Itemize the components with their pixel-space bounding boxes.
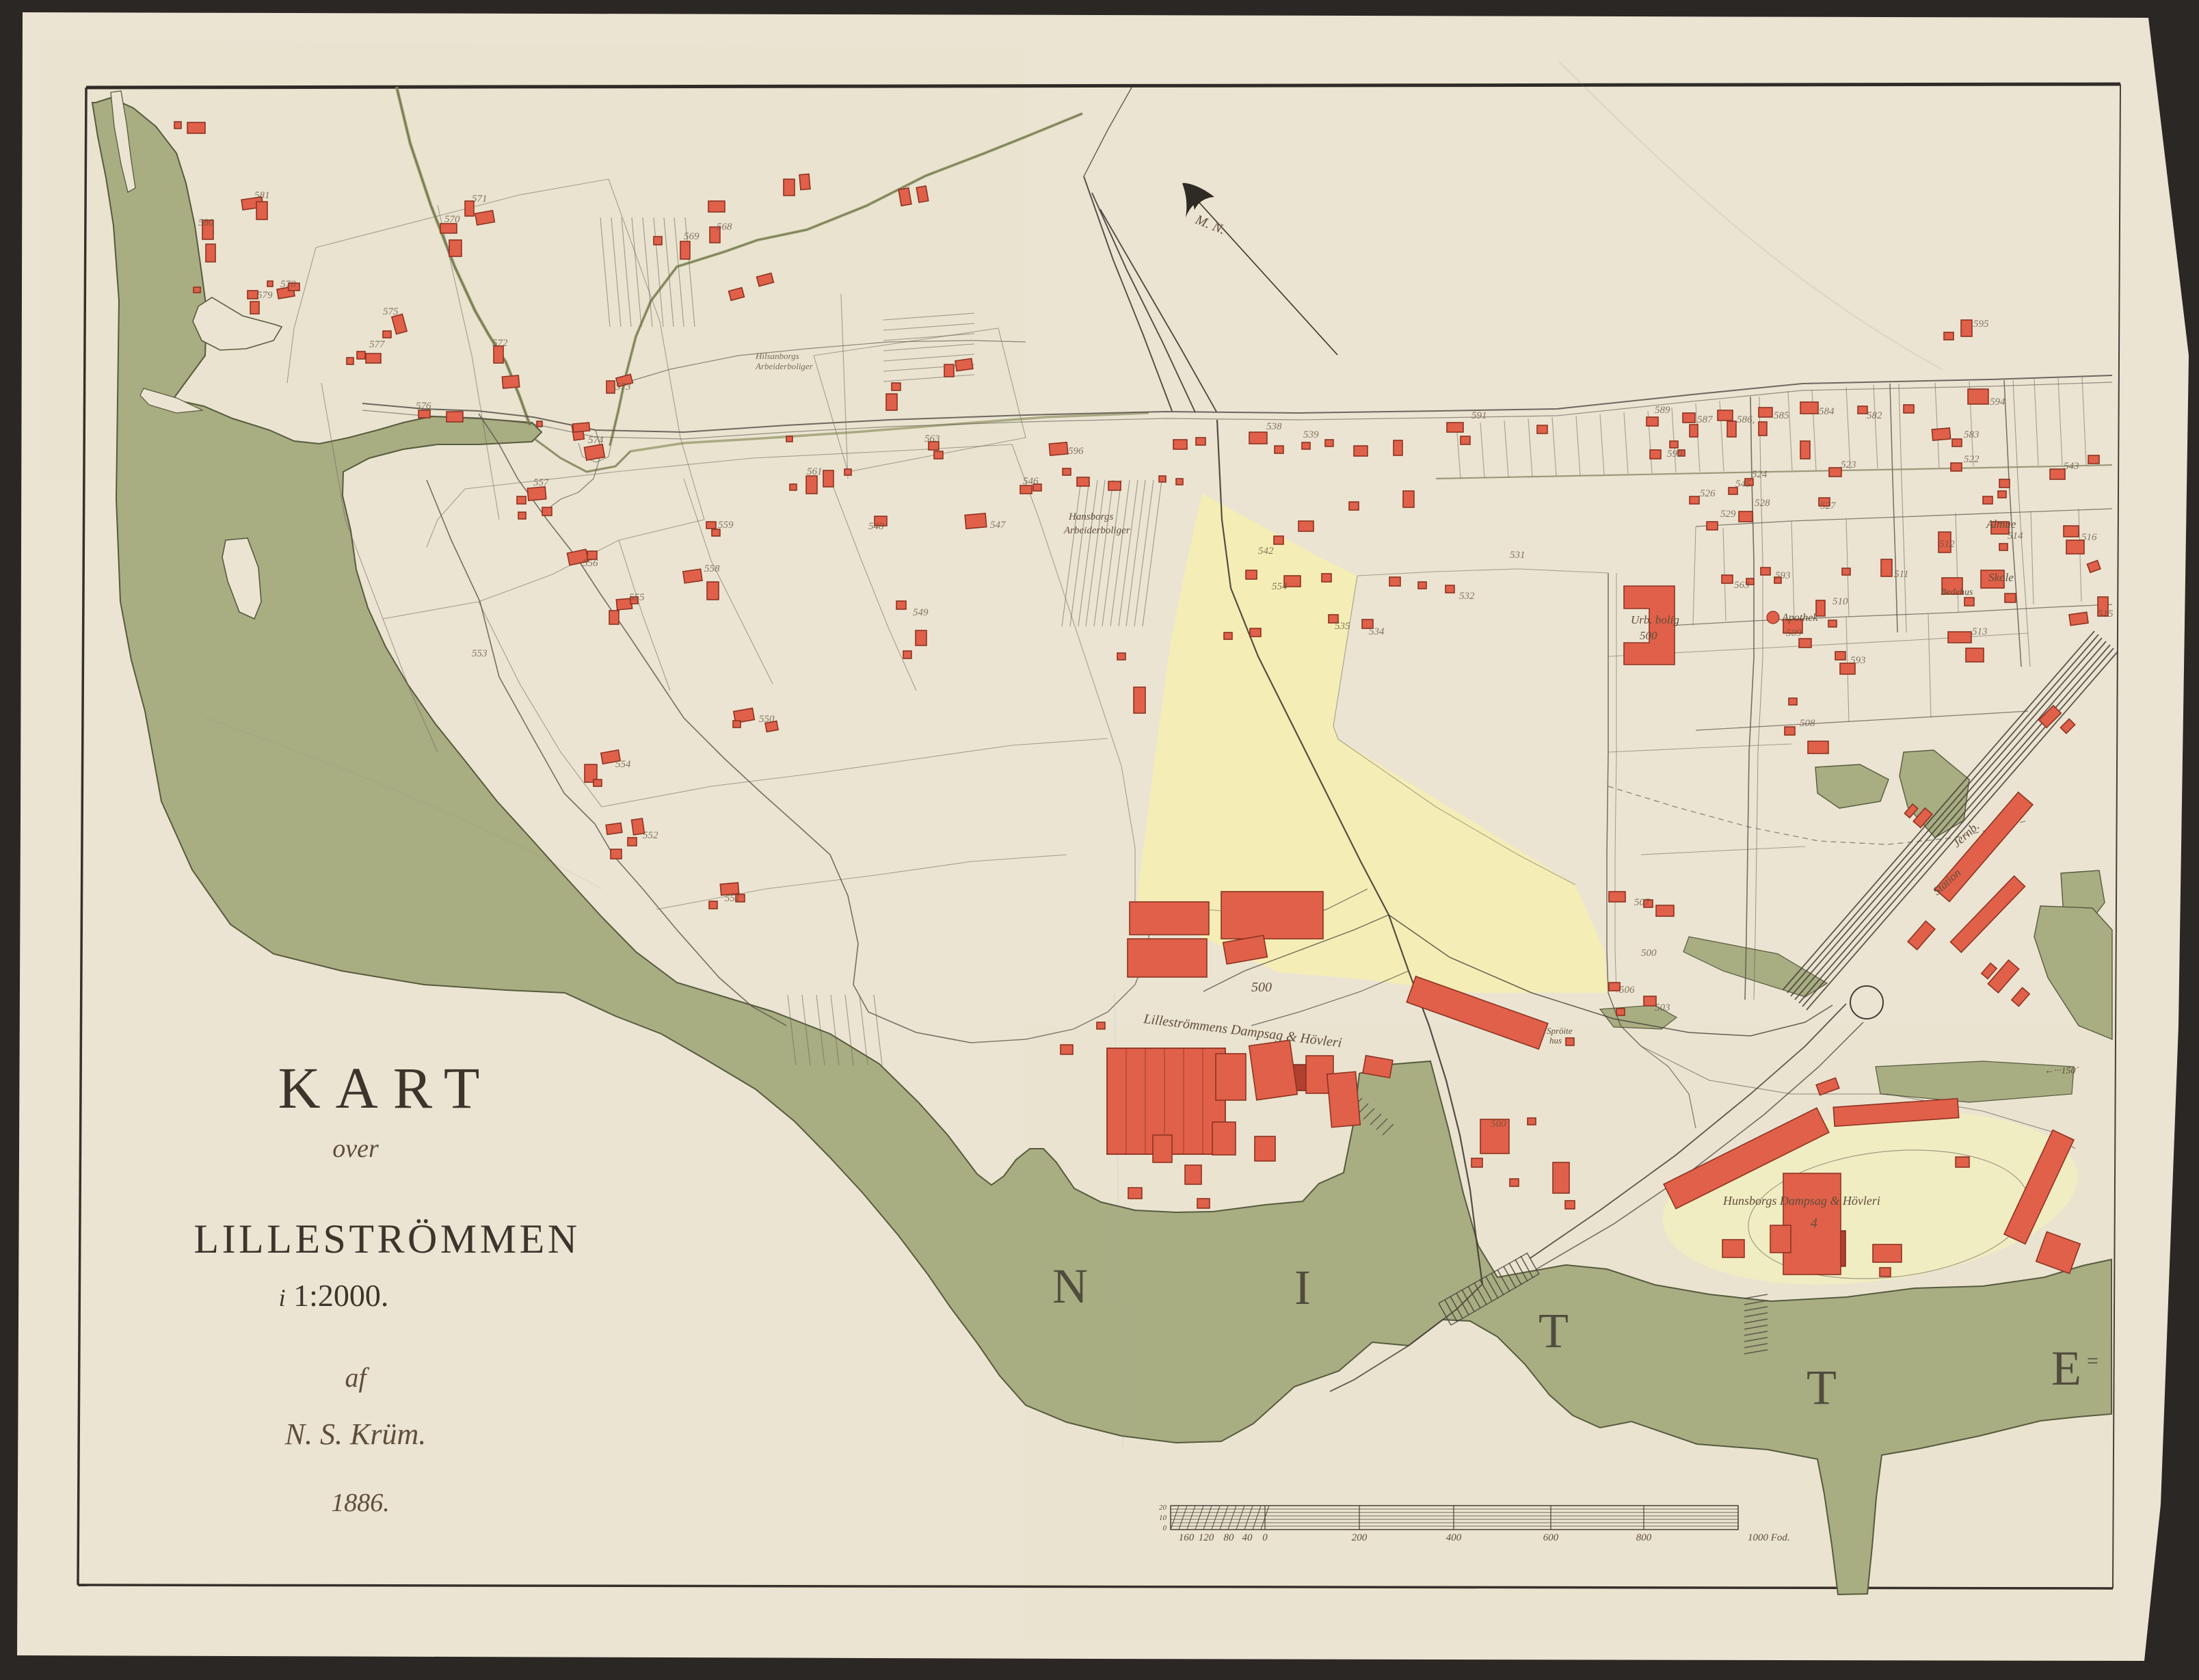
- svg-text:584: 584: [1819, 406, 1835, 417]
- svg-text:KART: KART: [278, 1055, 495, 1121]
- svg-text:528: 528: [1755, 498, 1770, 509]
- svg-text:1886.: 1886.: [331, 1489, 390, 1517]
- svg-text:554: 554: [1272, 581, 1288, 592]
- svg-text:500: 500: [1640, 629, 1657, 642]
- svg-text:548: 548: [868, 521, 884, 532]
- svg-text:535: 535: [1335, 621, 1350, 632]
- svg-text:580: 580: [198, 217, 214, 228]
- svg-text:583: 583: [1964, 429, 1980, 440]
- svg-text:Hunsborgs Dampsag & Hövleri: Hunsborgs Dampsag & Hövleri: [1722, 1194, 1880, 1208]
- svg-text:590: 590: [1667, 449, 1683, 459]
- svg-text:500: 500: [1491, 1119, 1506, 1130]
- svg-text:569: 569: [684, 231, 699, 242]
- svg-text:20: 20: [1159, 1504, 1167, 1512]
- svg-text:557: 557: [533, 477, 550, 488]
- svg-text:510: 510: [1833, 596, 1848, 607]
- svg-text:516: 516: [2081, 532, 2097, 543]
- svg-text:509: 509: [1786, 628, 1802, 639]
- svg-text:559: 559: [718, 520, 734, 531]
- svg-text:503: 503: [1655, 1002, 1670, 1013]
- svg-text:526: 526: [1700, 488, 1716, 499]
- svg-text:T: T: [1538, 1303, 1569, 1358]
- svg-text:538: 538: [1266, 421, 1282, 432]
- svg-text:500: 500: [1251, 980, 1272, 995]
- svg-text:594: 594: [1990, 397, 2005, 408]
- svg-text:LILLESTRÖMMEN: LILLESTRÖMMEN: [194, 1216, 580, 1262]
- svg-text:N. S. Krüm.: N. S. Krüm.: [284, 1417, 427, 1451]
- svg-text:550: 550: [759, 714, 775, 725]
- svg-text:549: 549: [913, 607, 929, 618]
- svg-text:511: 511: [1894, 569, 1908, 580]
- svg-text:400: 400: [1446, 1532, 1462, 1543]
- svg-text:506: 506: [1619, 985, 1635, 996]
- svg-text:Hansborgs: Hansborgs: [1068, 511, 1113, 522]
- svg-text:515: 515: [2098, 609, 2114, 619]
- svg-text:545: 545: [1735, 479, 1751, 490]
- svg-text:500: 500: [1641, 948, 1657, 959]
- svg-text:593: 593: [1775, 570, 1791, 581]
- svg-text:531: 531: [1510, 550, 1525, 561]
- svg-text:596: 596: [1068, 446, 1084, 457]
- svg-text:568: 568: [717, 222, 732, 232]
- svg-text:581: 581: [254, 190, 270, 201]
- svg-text:558: 558: [704, 563, 720, 574]
- svg-text:80: 80: [1224, 1532, 1235, 1543]
- svg-text:507: 507: [1634, 897, 1651, 908]
- svg-text:561: 561: [807, 466, 823, 477]
- svg-text:532: 532: [1459, 591, 1475, 602]
- svg-text:587: 587: [1697, 414, 1714, 425]
- svg-text:524: 524: [1752, 469, 1768, 480]
- svg-text:0: 0: [1163, 1524, 1167, 1532]
- svg-text:=: =: [2087, 1350, 2098, 1372]
- svg-text:547: 547: [990, 520, 1007, 531]
- svg-text:546: 546: [1023, 476, 1039, 487]
- svg-text:40: 40: [1242, 1532, 1253, 1543]
- svg-text:542: 542: [1258, 546, 1274, 557]
- svg-text:534: 534: [1369, 626, 1385, 637]
- svg-text:E: E: [2051, 1341, 2081, 1396]
- svg-text:Almue: Almue: [1986, 518, 2016, 531]
- svg-text:586,: 586,: [1737, 414, 1755, 425]
- svg-text:1000 Fod.: 1000 Fod.: [1748, 1532, 1790, 1543]
- svg-text:af: af: [345, 1362, 369, 1393]
- svg-text:574: 574: [588, 435, 604, 446]
- svg-text:Skole: Skole: [1988, 571, 2014, 584]
- svg-text:576: 576: [416, 401, 431, 412]
- svg-text:554: 554: [615, 759, 631, 770]
- svg-text:522: 522: [1964, 454, 1980, 465]
- svg-text:543: 543: [2064, 461, 2079, 472]
- svg-text:579: 579: [257, 290, 273, 301]
- svg-text:over: over: [332, 1134, 379, 1163]
- svg-text:578: 578: [280, 279, 296, 290]
- svg-text:T: T: [1807, 1360, 1837, 1415]
- svg-text:600: 600: [1543, 1532, 1559, 1543]
- svg-text:512: 512: [1939, 539, 1955, 550]
- svg-text:552: 552: [643, 830, 658, 841]
- svg-text:10: 10: [1159, 1514, 1167, 1522]
- svg-text:Bedehus: Bedehus: [1941, 587, 1973, 598]
- svg-text:551: 551: [725, 893, 741, 904]
- svg-text:572: 572: [492, 338, 508, 349]
- svg-text:570: 570: [444, 214, 460, 225]
- svg-text:577: 577: [369, 339, 386, 350]
- svg-text:508: 508: [1800, 718, 1815, 729]
- svg-text:Arbeiderboliger: Arbeiderboliger: [755, 361, 814, 371]
- svg-text:Urb. bolig: Urb. bolig: [1631, 613, 1679, 626]
- svg-text:523: 523: [1841, 459, 1856, 470]
- svg-text:593: 593: [1850, 655, 1866, 666]
- svg-text:800: 800: [1636, 1532, 1652, 1543]
- svg-text:555: 555: [629, 592, 645, 603]
- svg-text:589: 589: [1655, 405, 1670, 416]
- svg-text:527: 527: [1820, 501, 1837, 511]
- svg-text:553: 553: [472, 648, 488, 659]
- svg-text:556: 556: [583, 558, 598, 569]
- svg-text:563: 563: [924, 434, 940, 444]
- svg-text:hus: hus: [1549, 1035, 1562, 1045]
- svg-text:514: 514: [2008, 531, 2023, 542]
- svg-text:539: 539: [1303, 429, 1319, 440]
- svg-text:N: N: [1052, 1259, 1088, 1314]
- svg-text:571: 571: [472, 194, 488, 204]
- svg-text:529: 529: [1720, 509, 1736, 520]
- svg-text:←···150´: ←···150´: [2044, 1066, 2079, 1076]
- svg-text:200: 200: [1352, 1532, 1368, 1543]
- svg-text:Apothek: Apothek: [1781, 612, 1818, 624]
- svg-text:120: 120: [1199, 1532, 1214, 1543]
- svg-text:4: 4: [1811, 1216, 1817, 1231]
- svg-text:585: 585: [1774, 410, 1789, 421]
- svg-text:595: 595: [1973, 319, 1989, 330]
- svg-text:591: 591: [1471, 410, 1487, 421]
- svg-text:Arbeiderboliger: Arbeiderboliger: [1063, 525, 1130, 536]
- svg-text:575: 575: [383, 306, 399, 317]
- svg-text:0: 0: [1262, 1532, 1268, 1543]
- svg-text:160: 160: [1179, 1532, 1195, 1543]
- svg-text:i 1:2000.: i 1:2000.: [279, 1278, 389, 1313]
- svg-text:Hilsanborgs: Hilsanborgs: [755, 351, 799, 361]
- svg-text:563: 563: [1734, 580, 1750, 591]
- svg-text:573: 573: [615, 382, 631, 392]
- svg-text:I: I: [1294, 1260, 1311, 1315]
- svg-text:582: 582: [1867, 410, 1882, 421]
- svg-text:513: 513: [1972, 626, 1988, 637]
- svg-text:Spröite: Spröite: [1547, 1026, 1573, 1036]
